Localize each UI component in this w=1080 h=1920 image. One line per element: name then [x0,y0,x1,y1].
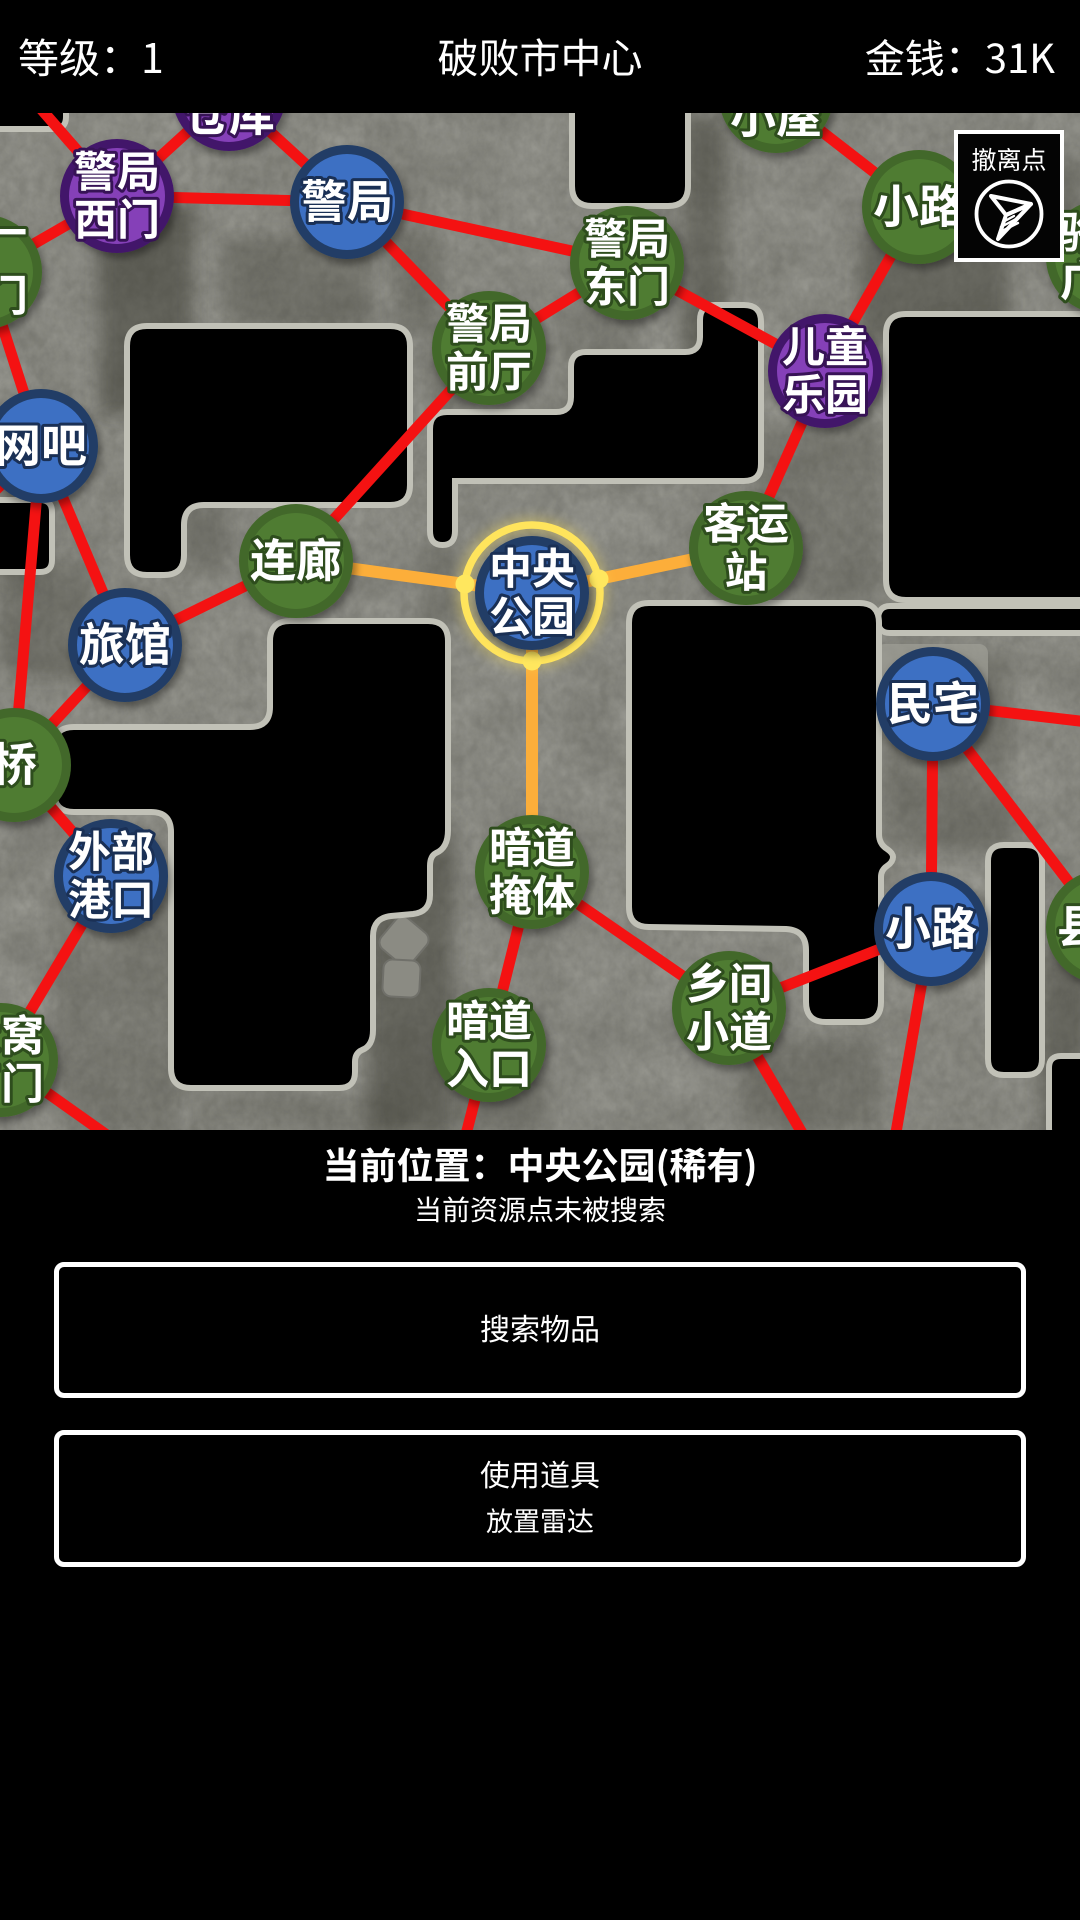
svg-text:东门: 东门 [584,253,670,315]
svg-text:站: 站 [725,538,768,600]
svg-text:入口: 入口 [446,1035,532,1097]
svg-text:厂门: 厂门 [0,1050,44,1112]
svg-text:连廊: 连廊 [250,525,342,591]
svg-text:民宅: 民宅 [887,668,979,734]
svg-text:港口: 港口 [68,866,154,928]
svg-text:旅馆: 旅馆 [79,609,171,675]
svg-text:掩体: 掩体 [489,862,575,924]
svg-text:公园: 公园 [489,583,575,645]
svg-text:网吧: 网吧 [0,410,87,476]
svg-text:小道: 小道 [686,998,772,1060]
svg-text:小路: 小路 [885,893,977,959]
svg-text:前厅: 前厅 [446,338,532,400]
svg-text:乐园: 乐园 [782,361,868,423]
svg-text:桥: 桥 [0,729,37,795]
svg-text:西门: 西门 [74,186,160,248]
svg-text:小路: 小路 [873,171,965,237]
svg-text:警局: 警局 [301,166,393,232]
svg-text:大门: 大门 [0,262,28,324]
svg-text:县道: 县道 [1057,891,1080,957]
